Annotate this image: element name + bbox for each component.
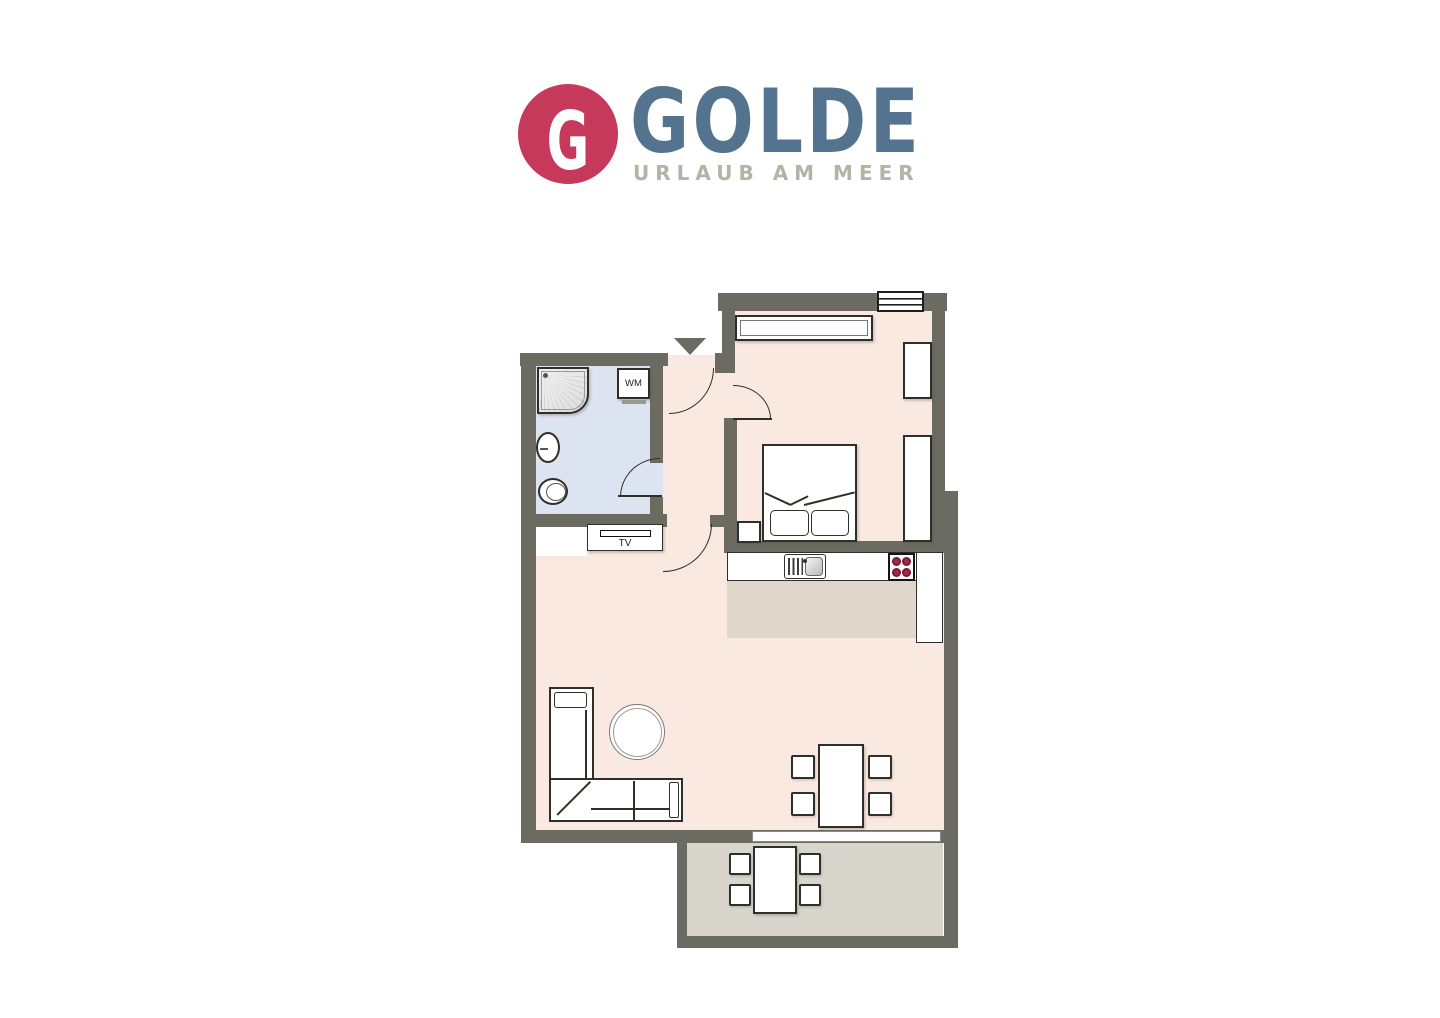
dining-table bbox=[818, 744, 864, 828]
pillow bbox=[811, 510, 849, 536]
balcony-chair bbox=[799, 884, 821, 906]
kitchen-sink-unit bbox=[784, 554, 826, 579]
blanket-fold-line bbox=[804, 491, 855, 505]
bedroom-cabinet-2 bbox=[903, 435, 932, 542]
tv-label: TV bbox=[588, 538, 662, 549]
logo-circle-icon: G bbox=[518, 84, 618, 184]
toilet bbox=[538, 478, 568, 505]
sofa-seat-line bbox=[585, 710, 587, 780]
wardrobe-inner-line bbox=[740, 320, 868, 336]
burner-icon bbox=[892, 568, 901, 577]
bedroom-window bbox=[877, 291, 924, 312]
dining-chair bbox=[791, 755, 815, 779]
nightstand bbox=[737, 521, 761, 543]
wall-niche bbox=[536, 527, 587, 556]
blanket-fold-line bbox=[765, 492, 791, 505]
sofa-seat-divider bbox=[633, 781, 635, 820]
tv-screen-icon bbox=[600, 530, 651, 537]
entrance-arrow-icon bbox=[674, 338, 706, 355]
bedroom-cabinet-1 bbox=[903, 342, 932, 399]
wall-right-outer bbox=[944, 491, 958, 948]
wall-balcony-left bbox=[677, 830, 687, 948]
sink-drainer-icon bbox=[788, 558, 803, 575]
sink-tap-icon bbox=[540, 448, 548, 450]
coffee-table-inner-ring bbox=[613, 708, 662, 757]
bathroom-sink bbox=[536, 432, 560, 463]
wall-bathroom-top bbox=[520, 353, 668, 366]
double-bed bbox=[762, 444, 857, 542]
faucet-icon bbox=[803, 559, 807, 563]
balcony-sliding-door bbox=[752, 831, 941, 842]
dining-chair bbox=[868, 792, 892, 816]
stove bbox=[888, 553, 915, 581]
sink-basin bbox=[805, 557, 823, 576]
wall-bathroom-right-upper bbox=[650, 362, 663, 463]
sofa-seat-line bbox=[591, 808, 669, 810]
coffee-table bbox=[609, 704, 665, 760]
bathroom-door-leaf bbox=[618, 495, 662, 497]
logo-brand-text: GOLDE bbox=[630, 78, 922, 166]
washing-machine-hose bbox=[622, 400, 646, 404]
washing-machine-label: WM bbox=[625, 378, 642, 389]
balcony-table bbox=[753, 846, 797, 914]
bedroom-door-leaf bbox=[733, 418, 772, 420]
wall-bathroom-right-lower bbox=[650, 497, 663, 517]
tv-board: TV bbox=[587, 524, 663, 551]
balcony-chair bbox=[729, 853, 751, 875]
dining-chair bbox=[791, 792, 815, 816]
wall-livingdoor-jamb bbox=[710, 515, 726, 527]
balcony-chair bbox=[729, 884, 751, 906]
wall-balcony-bottom bbox=[677, 936, 954, 948]
kitchen-counter-side bbox=[916, 552, 943, 643]
balcony-chair bbox=[799, 853, 821, 875]
shower bbox=[537, 367, 589, 414]
wall-left-outer bbox=[521, 353, 536, 843]
burner-icon bbox=[902, 557, 911, 566]
pillow bbox=[770, 510, 809, 536]
dining-chair bbox=[868, 755, 892, 779]
burner-icon bbox=[902, 568, 911, 577]
wall-bedroom-left-lower bbox=[724, 418, 737, 553]
bedroom-wardrobe bbox=[735, 315, 873, 341]
logo-monogram: G bbox=[536, 92, 601, 192]
sofa bbox=[549, 687, 683, 822]
shower-drain-icon bbox=[543, 373, 548, 378]
page: G GOLDE URLAUB AM MEER bbox=[0, 0, 1440, 1018]
logo-tagline-text: URLAUB AM MEER bbox=[633, 161, 920, 185]
sofa-armrest-top bbox=[554, 692, 587, 708]
toilet-bowl bbox=[546, 483, 566, 501]
sofa-armrest-right bbox=[669, 782, 679, 818]
burner-icon bbox=[892, 557, 901, 566]
washing-machine: WM bbox=[617, 368, 650, 399]
